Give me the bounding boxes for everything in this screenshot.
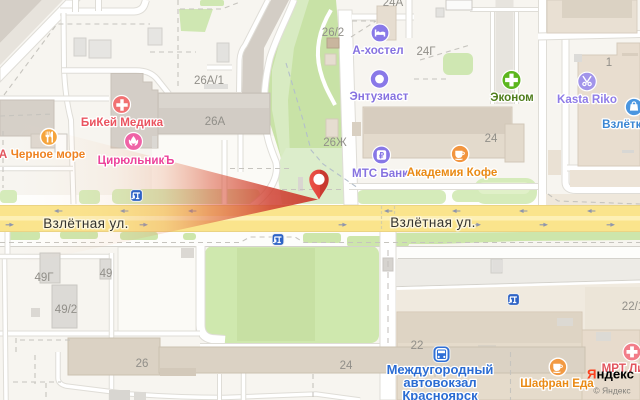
svg-text:22: 22 — [411, 340, 424, 352]
svg-text:Красноярск: Красноярск — [402, 388, 478, 400]
svg-text:1: 1 — [606, 57, 612, 69]
svg-text:Черное море: Черное море — [11, 148, 86, 161]
svg-text:Взлётная ул.: Взлётная ул. — [390, 215, 476, 230]
svg-text:ЦирюльникЪ: ЦирюльникЪ — [98, 154, 175, 167]
svg-text:24А: 24А — [383, 0, 404, 9]
svg-text:24: 24 — [485, 133, 498, 145]
svg-text:Взлётная ул.: Взлётная ул. — [43, 216, 129, 231]
svg-text:Kasta Riko: Kasta Riko — [557, 93, 617, 106]
svg-text:26А/1: 26А/1 — [194, 75, 224, 87]
svg-text:49/2: 49/2 — [55, 304, 77, 316]
svg-text:24: 24 — [340, 360, 353, 372]
svg-text:А: А — [0, 148, 8, 161]
svg-text:Яндекс: Яндекс — [587, 367, 634, 382]
svg-text:49: 49 — [100, 268, 113, 280]
svg-text:22/1: 22/1 — [622, 301, 640, 313]
svg-text:© Яндекс: © Яндекс — [593, 386, 631, 396]
svg-text:26: 26 — [136, 358, 149, 370]
svg-text:Взлётка: Взлётка — [602, 118, 640, 131]
svg-text:26/2: 26/2 — [322, 27, 344, 39]
svg-text:А-хостел: А-хостел — [352, 44, 403, 57]
svg-text:Шафран Еда: Шафран Еда — [520, 377, 594, 390]
svg-text:26Ж: 26Ж — [323, 137, 347, 149]
svg-text:24Г: 24Г — [416, 46, 436, 58]
svg-text:Эконом: Эконом — [490, 91, 534, 104]
svg-text:49Г: 49Г — [34, 272, 54, 284]
svg-text:БиКей Медика: БиКей Медика — [81, 116, 164, 129]
svg-text:Энтузиаст: Энтузиаст — [350, 90, 409, 103]
svg-text:МТС Банк: МТС Банк — [352, 167, 408, 180]
svg-text:Академия Кофе: Академия Кофе — [407, 166, 498, 179]
svg-text:26А: 26А — [205, 116, 226, 128]
